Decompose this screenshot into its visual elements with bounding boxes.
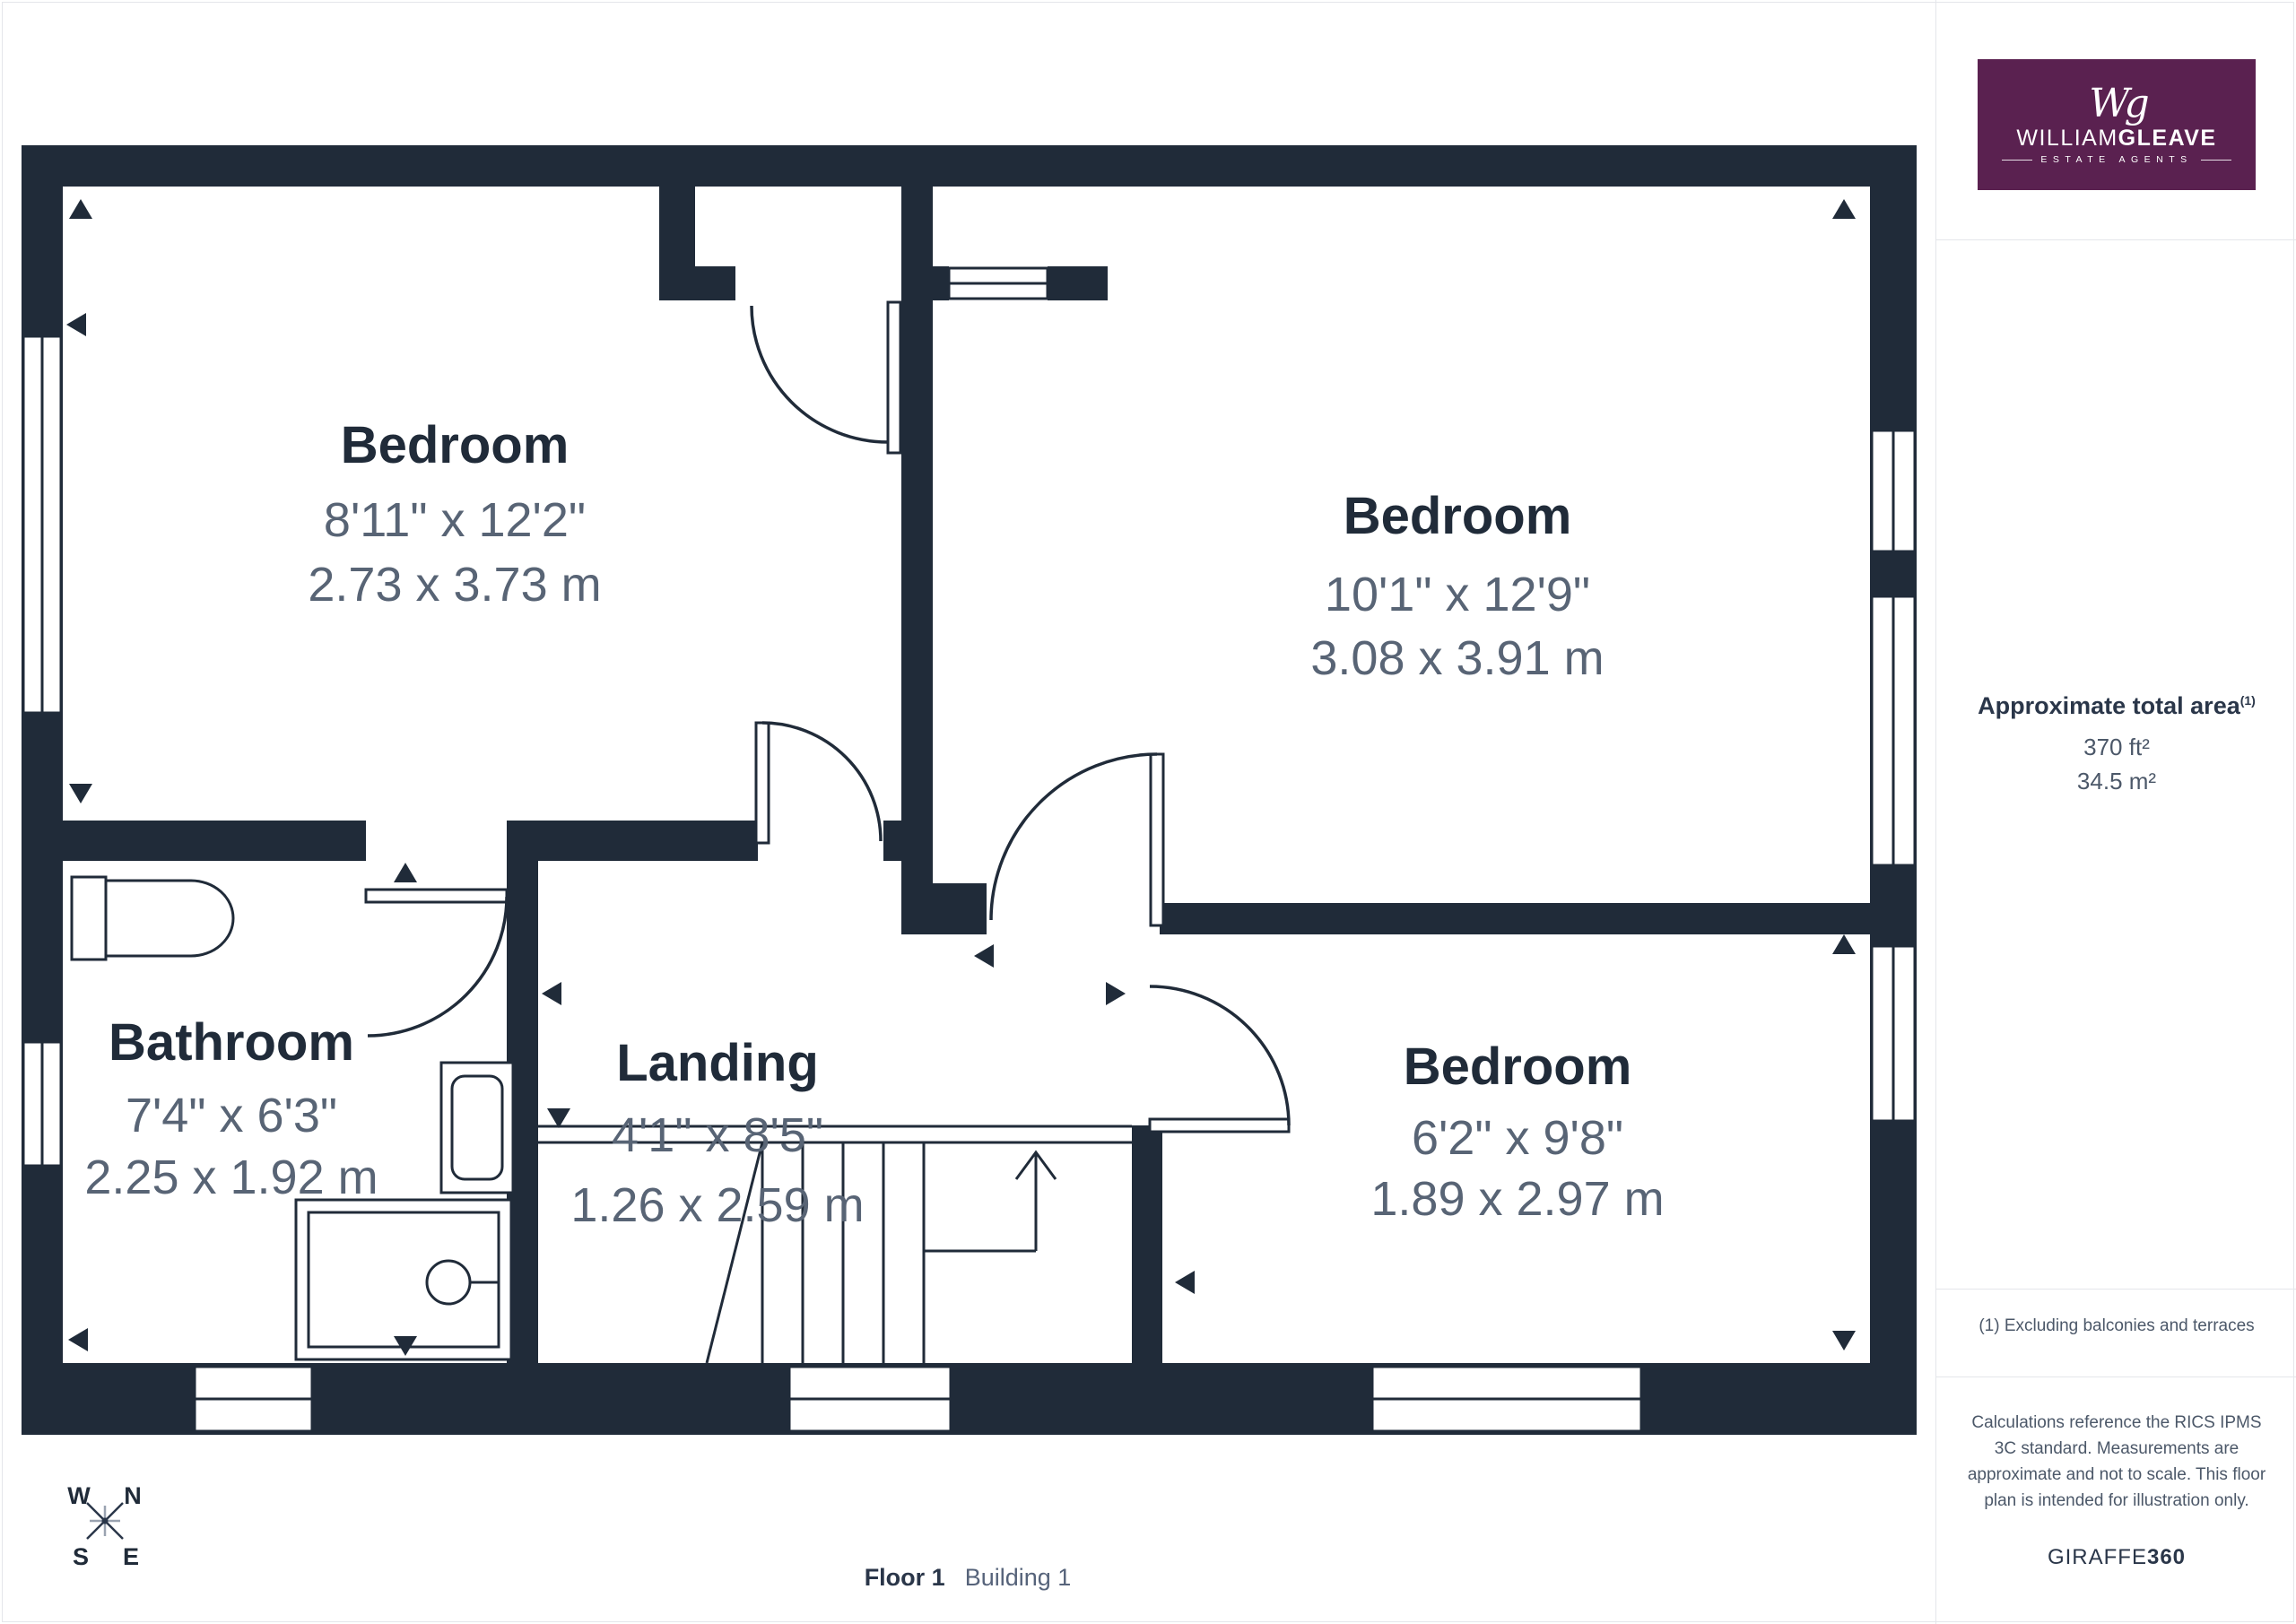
area-heading: Approximate total area(1) (1936, 692, 2296, 720)
area-heading-text: Approximate total area (1978, 692, 2240, 719)
logo-name-regular: WILLIAM (2016, 126, 2118, 151)
door-leaf-bed1 (888, 302, 900, 453)
wall-bed1-bottom-b (507, 821, 758, 861)
logo-name-bold: GLEAVE (2118, 126, 2217, 151)
wall-center-end (901, 883, 987, 934)
wall-center (901, 187, 933, 883)
sink-fixture (441, 1063, 513, 1193)
room-bed3-metric: 1.89 x 2.97 m (1370, 1172, 1664, 1226)
door-leaf-bathroom (366, 890, 507, 902)
agency-logo: Wg WILLIAMGLEAVE ESTATE AGENTS (1978, 59, 2256, 190)
area-imperial: 370 ft² (1936, 734, 2296, 761)
logo-tagline: ESTATE AGENTS (2002, 154, 2231, 165)
wall-closet-foot (659, 266, 735, 300)
room-bed1-name: Bedroom (341, 416, 570, 474)
wall-bed2-bed3-divider (1160, 903, 1870, 934)
toilet-fixture (72, 877, 233, 960)
room-bed2-metric: 3.08 x 3.91 m (1310, 631, 1604, 685)
room-bed2-name: Bedroom (1344, 487, 1572, 545)
area-footnote: (1) Excluding balconies and terraces (1936, 1316, 2296, 1336)
giraffe-brand-bold: 360 (2147, 1545, 2186, 1569)
door-arc-bathroom (368, 897, 507, 1036)
room-bed3-imperial: 6'2" x 9'8" (1412, 1111, 1623, 1165)
giraffe360-brand: GIRAFFE360 (1936, 1545, 2296, 1570)
floor-footer: Floor 1Building 1 (0, 1564, 1935, 1592)
tagline-rule-left (2002, 160, 2032, 161)
door-arc-bed3 (1150, 986, 1289, 1125)
sidebar-divider (1936, 239, 2296, 240)
door-arc-bed2 (991, 754, 1157, 920)
room-landing-name: Landing (616, 1034, 819, 1092)
room-landing-metric: 1.26 x 2.59 m (570, 1178, 864, 1232)
stair-break-line (707, 1142, 762, 1363)
wall-top (22, 145, 1917, 187)
room-bathroom-imperial: 7'4" x 6'3" (126, 1089, 337, 1142)
wall-recess-a (933, 266, 949, 300)
room-bed2-imperial: 10'1" x 12'9" (1325, 568, 1590, 621)
building-label: Building 1 (965, 1564, 1072, 1591)
room-bed1-imperial: 8'11" x 12'2" (324, 493, 586, 547)
room-landing-imperial: 4'1" x 8'5" (612, 1108, 823, 1162)
sidebar-divider (1936, 1289, 2296, 1290)
compass-north: N (124, 1482, 142, 1509)
floorplan-page: Bedroom 8'11" x 12'2" 2.73 x 3.73 m Bedr… (0, 0, 2296, 1624)
logo-monogram-icon: Wg (2089, 84, 2144, 124)
tagline-rule-right (2201, 160, 2231, 161)
info-sidebar: Wg WILLIAMGLEAVE ESTATE AGENTS Approxima… (1935, 0, 2296, 1624)
floor-label: Floor 1 (865, 1564, 945, 1591)
door-leaf-bed3 (1150, 1119, 1289, 1132)
door-leaf-landing (756, 723, 769, 843)
tagline-text: ESTATE AGENTS (2040, 154, 2192, 165)
giraffe-brand-regular: GIRAFFE (2048, 1545, 2147, 1569)
compass-icon: W N S E (67, 1482, 141, 1570)
wall-bed3-left (1132, 1125, 1162, 1363)
door-arc-bed1 (752, 306, 888, 442)
disclaimer-text: Calculations reference the RICS IPMS 3C … (1961, 1410, 2273, 1514)
room-bed3-name: Bedroom (1404, 1038, 1632, 1096)
room-bathroom-metric: 2.25 x 1.92 m (84, 1151, 378, 1204)
logo-name: WILLIAMGLEAVE (2016, 126, 2216, 151)
wall-recess-b (1048, 266, 1108, 300)
wall-bed1-bottom-jamb (883, 821, 933, 861)
area-heading-sup: (1) (2240, 693, 2256, 708)
door-leaf-bed2 (1151, 754, 1163, 925)
shower-fixture (296, 1200, 511, 1359)
room-bathroom-name: Bathroom (109, 1013, 354, 1072)
area-metric: 34.5 m² (1936, 768, 2296, 795)
room-bed1-metric: 2.73 x 3.73 m (308, 558, 601, 612)
sidebar-divider (1936, 1376, 2296, 1377)
stairs-up-arrow (1016, 1152, 1056, 1251)
compass-west: W (67, 1482, 91, 1509)
door-arc-landing (762, 723, 881, 841)
wall-bed1-bottom-a (22, 821, 366, 861)
